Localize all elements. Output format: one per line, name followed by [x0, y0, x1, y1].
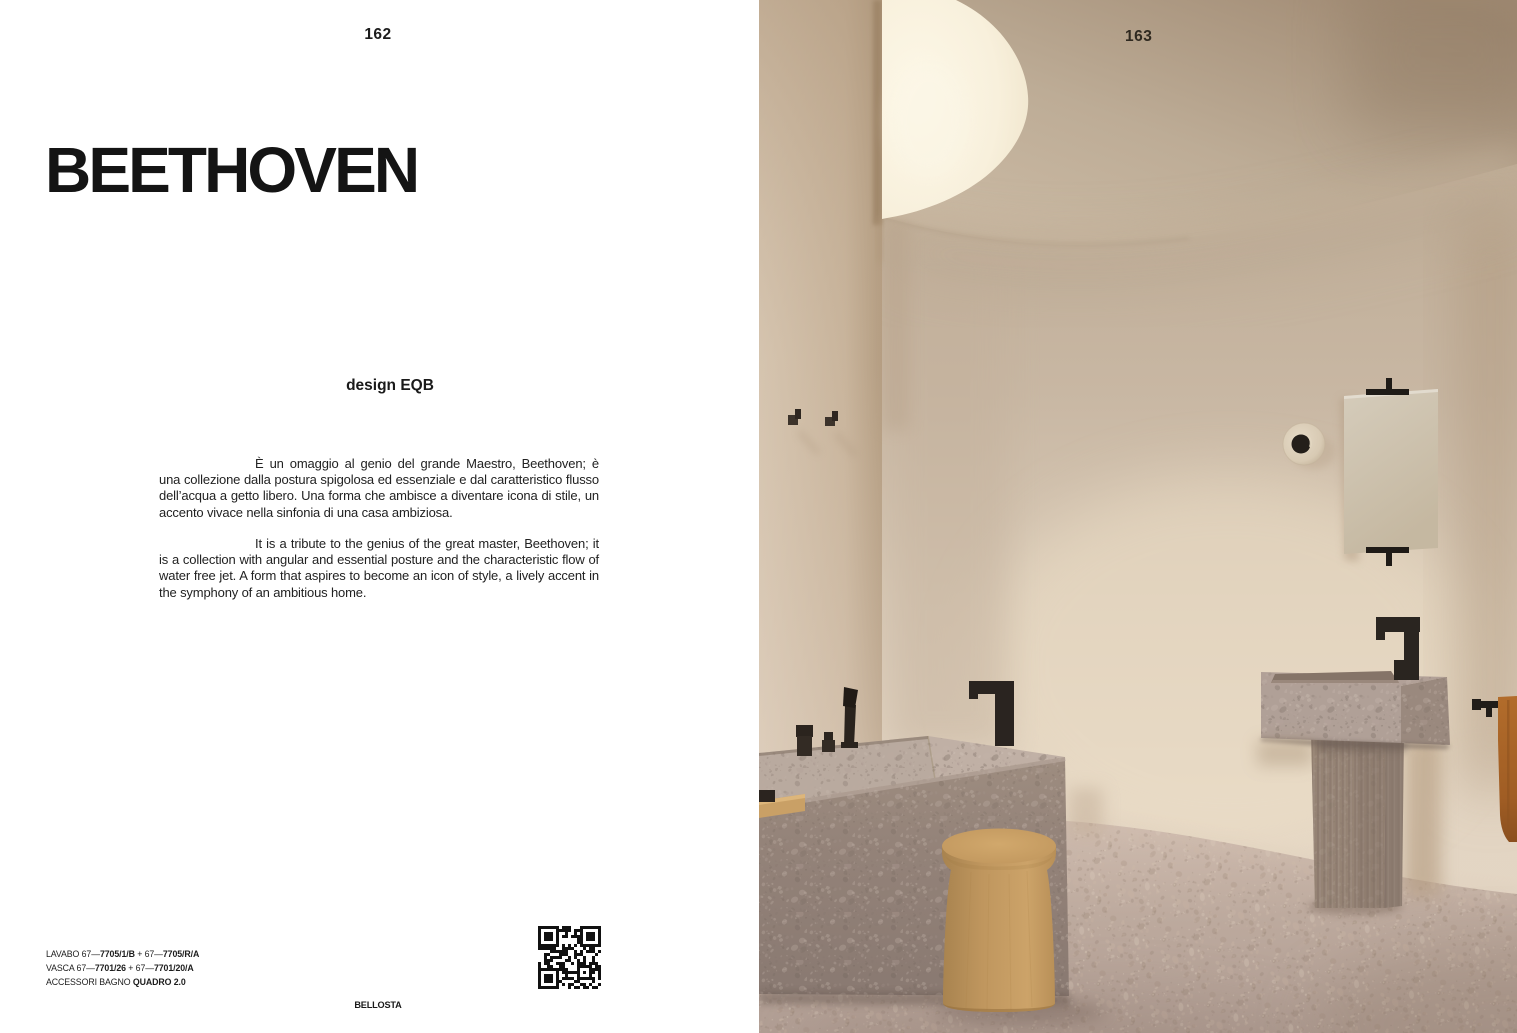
svg-text:163: 163: [1125, 28, 1152, 45]
